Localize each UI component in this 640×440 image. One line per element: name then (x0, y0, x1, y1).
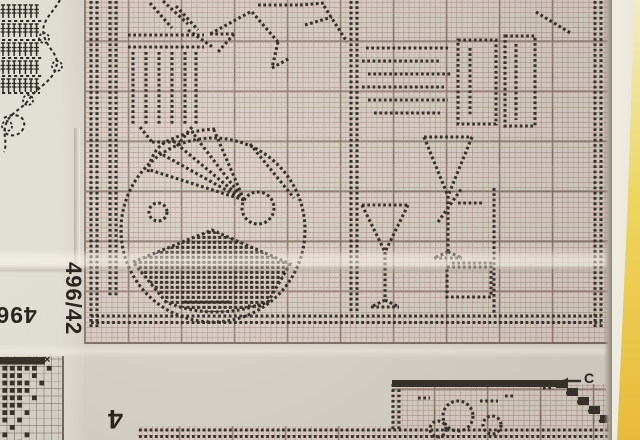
scanned-pattern-page: 496/42 496/ 4 C × (0, 0, 640, 440)
lower-fold-crease (0, 344, 612, 358)
pattern-number-upside-down: 496/ (0, 301, 37, 328)
page-edge-shadow (604, 0, 612, 440)
stitch-x-mark: × (44, 354, 50, 366)
corner-mini-chart-grid (0, 356, 64, 440)
bottom-edging-chart-grid (392, 384, 606, 440)
main-filet-chart-grid (84, 0, 608, 344)
horizontal-fold-crease (0, 249, 612, 273)
pattern-number-side: 496/42 (60, 262, 86, 335)
bottom-edging-chart-strip (137, 426, 392, 440)
section-marker-c: C (584, 370, 594, 386)
pattern-number-bottom-partial: 4 (108, 403, 123, 434)
vertical-fold-crease (74, 128, 80, 264)
